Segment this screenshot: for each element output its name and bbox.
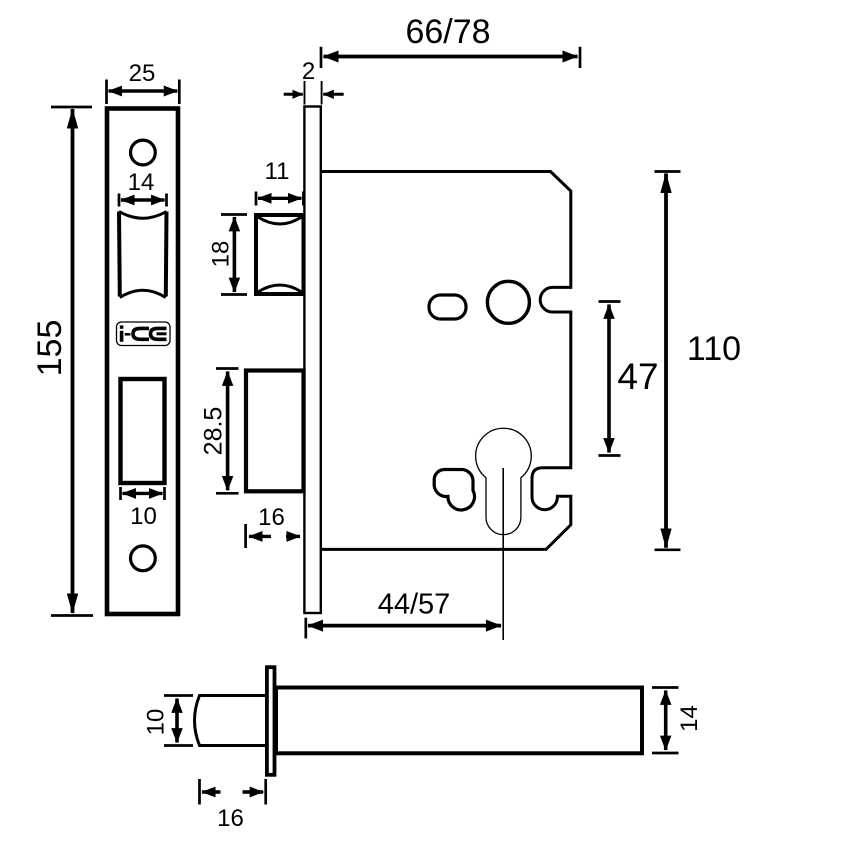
svg-text:11: 11: [265, 158, 290, 185]
svg-text:47: 47: [617, 356, 658, 397]
svg-text:16: 16: [217, 805, 244, 832]
svg-text:155: 155: [31, 320, 69, 377]
svg-text:110: 110: [687, 330, 741, 368]
svg-text:14: 14: [128, 169, 155, 196]
svg-text:10: 10: [130, 503, 157, 530]
svg-text:66/78: 66/78: [405, 13, 490, 51]
svg-text:18: 18: [208, 241, 235, 268]
svg-text:44/57: 44/57: [378, 589, 451, 621]
svg-text:10: 10: [143, 709, 170, 736]
svg-text:14: 14: [676, 705, 703, 732]
svg-text:16: 16: [258, 504, 285, 531]
svg-text:25: 25: [129, 60, 156, 87]
svg-text:2: 2: [302, 58, 315, 85]
svg-text:28.5: 28.5: [200, 407, 228, 456]
